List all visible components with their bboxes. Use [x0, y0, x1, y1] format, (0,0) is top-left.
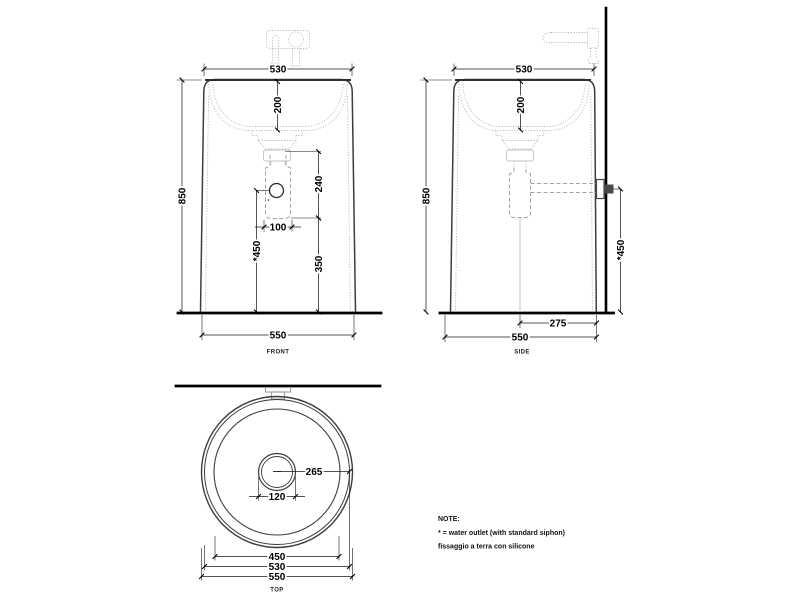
note-block: NOTE: * = water outlet (with standard si…: [438, 516, 565, 551]
dim-side-base-width: 550: [512, 332, 529, 343]
side-outlet-pipe: [531, 184, 597, 193]
top-view: 265 120 450 530 550 TOP: [176, 386, 380, 594]
dim-front-siphon-drop: 240: [314, 175, 325, 192]
side-view-label: SIDE: [514, 350, 530, 356]
side-view: 530 200 850 *450 275 550 SIDE: [421, 8, 628, 356]
dim-side-height: 850: [422, 187, 433, 204]
dim-side-outlet-height: *450: [616, 239, 627, 260]
wall-outlet-fitting: [597, 180, 605, 199]
technical-drawing: 530 850 200 240 350 100 *450 550 FRONT: [0, 0, 800, 600]
front-view: 530 850 200 240 350 100 *450 550 FRONT: [177, 31, 382, 356]
dim-front-bowl-depth: 200: [273, 96, 284, 113]
dim-front-outlet-height: *450: [252, 240, 263, 261]
dim-front-top-width: 530: [270, 64, 287, 75]
note-line-2: fissaggio a terra con silicone: [438, 544, 535, 551]
front-view-label: FRONT: [267, 350, 290, 356]
top-view-label: TOP: [270, 588, 283, 594]
outlet-mark: [268, 199, 270, 201]
note-line-1: * = water outlet (with standard siphon): [438, 530, 565, 537]
side-basin-drawing: [451, 80, 614, 313]
front-faucet-symbol: [267, 31, 310, 67]
top-basin-drawing: [202, 397, 353, 548]
dim-side-top-width: 530: [516, 64, 533, 75]
dim-top-outer-diameter: 550: [269, 572, 286, 583]
dim-side-bowl-depth: 200: [516, 96, 527, 113]
dim-front-siphon-width: 100: [270, 222, 287, 233]
dim-front-base-width: 550: [270, 330, 287, 341]
dim-side-wall-offset: 275: [550, 318, 567, 329]
dim-front-height: 850: [178, 187, 189, 204]
dim-front-outlet-floor: 350: [314, 255, 325, 272]
side-siphon-outline: [510, 168, 531, 218]
top-dimensions: 265 120 450 530 550: [202, 467, 353, 583]
dim-top-center-to-edge: 265: [306, 467, 323, 478]
dim-top-drain: 120: [269, 492, 286, 503]
water-outlet-symbol: [270, 184, 284, 198]
spec-sheet: 530 850 200 240 350 100 *450 550 FRONT: [0, 0, 800, 600]
side-faucet-symbol: [543, 29, 599, 64]
note-title: NOTE:: [438, 516, 460, 523]
